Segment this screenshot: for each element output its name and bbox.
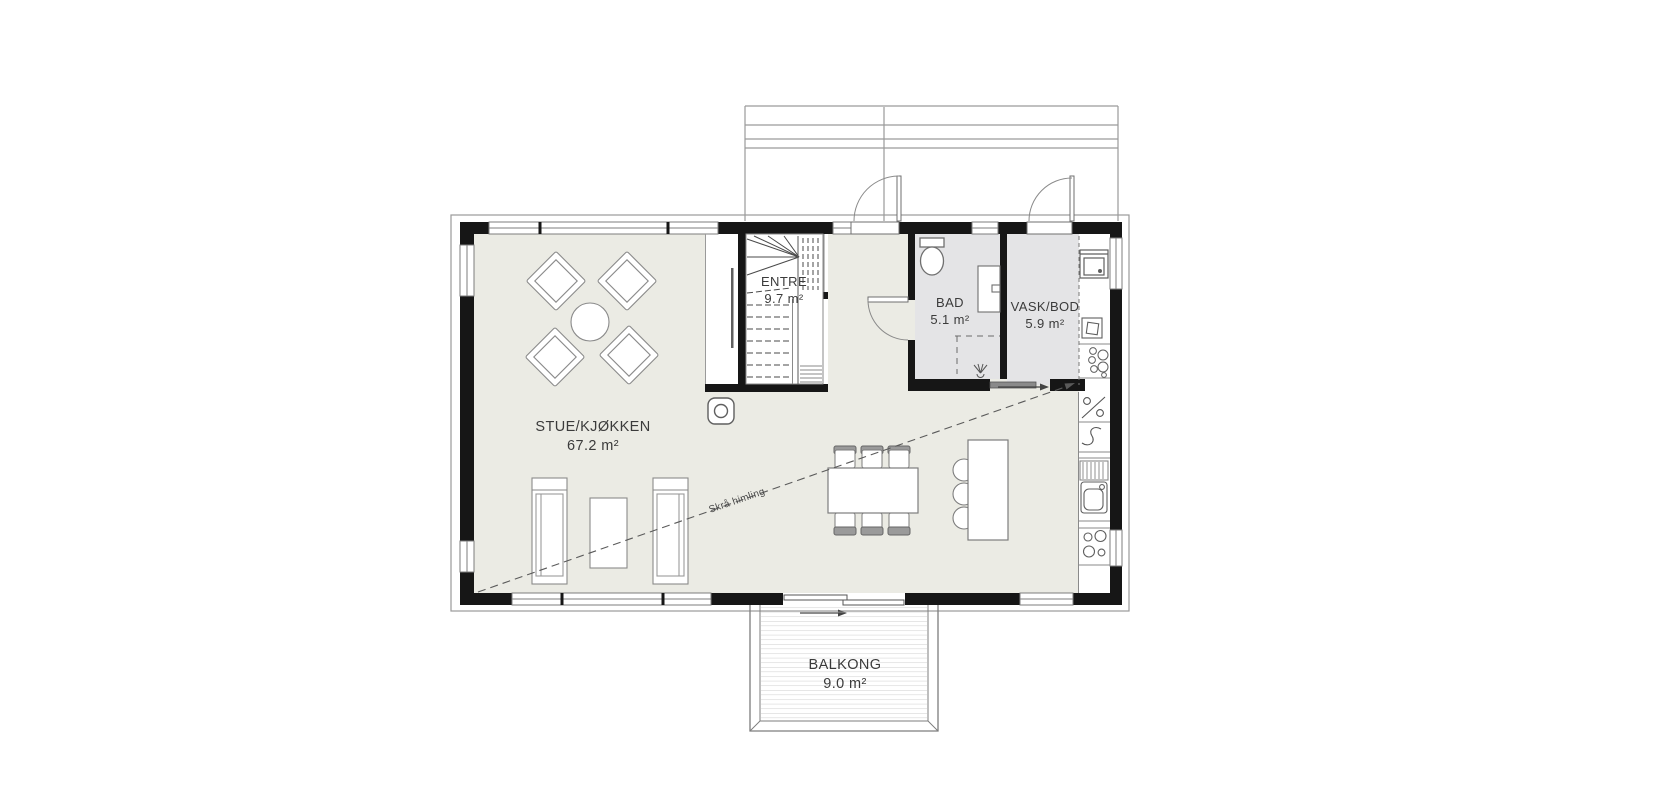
room-label-stue-kjokken: STUE/KJØKKEN 67.2 m² (535, 418, 650, 456)
floor-plan: STUE/KJØKKEN 67.2 m² ENTRE 9.7 m² BAD 5.… (0, 0, 1670, 800)
window-right-lower (1110, 530, 1122, 566)
window-bottom-band (512, 593, 711, 605)
window-entry-sidelight (833, 222, 851, 234)
room-name: BALKONG (809, 656, 882, 675)
staircase (746, 234, 824, 384)
room-label-balkong: BALKONG 9.0 m² (809, 656, 882, 694)
room-area: 5.1 m² (930, 312, 969, 329)
window-top-band (489, 222, 718, 234)
room-label-vask-bod: VASK/BOD 5.9 m² (1011, 299, 1080, 333)
room-area: 9.7 m² (761, 291, 807, 308)
room-name: BAD (930, 295, 969, 312)
room-label-entre: ENTRE 9.7 m² (761, 274, 807, 308)
window-top-small (972, 222, 998, 234)
window-left-lower (460, 541, 474, 572)
window-left-upper (460, 245, 474, 296)
shower-cabinet (978, 266, 1000, 312)
room-name: ENTRE (761, 274, 807, 291)
lounge-chair (653, 478, 688, 584)
kitchen-island (968, 440, 1008, 540)
dining-chair (888, 513, 910, 535)
lounge-chair (532, 478, 567, 584)
round-coffee-table (571, 303, 609, 341)
dining-chair (834, 446, 856, 468)
dining-table (828, 468, 918, 513)
dining-chair (834, 513, 856, 535)
room-area: 67.2 m² (535, 437, 650, 456)
room-name: STUE/KJØKKEN (535, 418, 650, 437)
dining-chair (861, 513, 883, 535)
washing-machine (1080, 250, 1108, 278)
room-area: 5.9 m² (1011, 316, 1080, 333)
room-name: VASK/BOD (1011, 299, 1080, 316)
toilet (920, 238, 944, 275)
entrance-door-main (851, 176, 901, 234)
room-label-bad: BAD 5.1 m² (930, 295, 969, 329)
room-area: 9.0 m² (809, 675, 882, 694)
window-bottom-small (1020, 593, 1073, 605)
entrance-door-vask (1027, 176, 1074, 234)
wood-stove (708, 398, 734, 424)
entrance-deck (745, 106, 1118, 221)
side-table (590, 498, 627, 568)
closet-door (731, 268, 734, 348)
window-right-upper (1110, 238, 1122, 289)
dining-chair (888, 446, 910, 468)
